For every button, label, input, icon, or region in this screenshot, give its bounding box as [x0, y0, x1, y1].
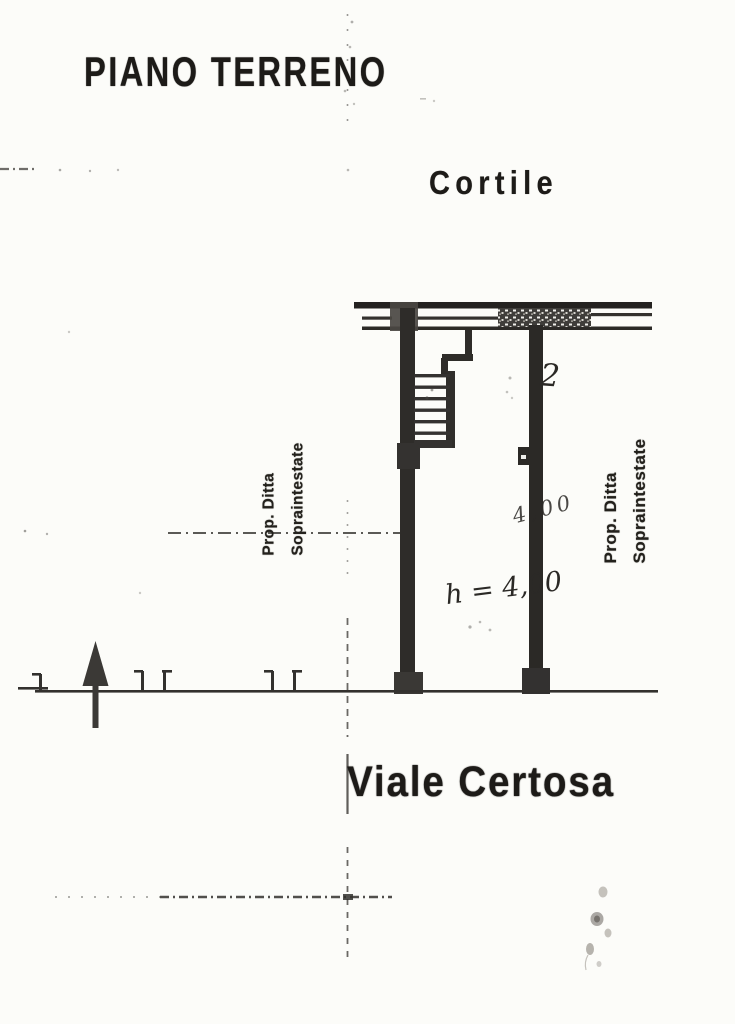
property-label-left-line2: Sopraintestate — [284, 442, 313, 555]
street-label: Viale Certosa — [347, 758, 615, 807]
left-edge-survey-line — [0, 169, 119, 173]
property-label-right-line2: Sopraintestate — [626, 438, 655, 563]
scan-smudges — [585, 887, 611, 971]
property-label-right-line1: Prop. Ditta — [597, 438, 626, 563]
top-wall — [354, 302, 652, 331]
property-label-left-line1: Prop. Ditta — [255, 442, 284, 555]
staircase — [414, 330, 473, 448]
north-arrow-icon — [83, 641, 109, 728]
center-axis-line — [343, 14, 353, 962]
scanned-floor-plan-page: PIANO TERRENO Cortile Prop. Ditta Soprai… — [0, 0, 735, 1024]
mid-survey-line — [24, 530, 400, 536]
property-label-left: Prop. Ditta Sopraintestate — [255, 442, 312, 555]
property-label-right: Prop. Ditta Sopraintestate — [597, 438, 655, 563]
courtyard-label: Cortile — [429, 164, 558, 202]
street-line — [18, 670, 658, 693]
room-number-annotation: 2 — [539, 357, 561, 394]
page-title: PIANO TERRENO — [84, 48, 387, 96]
left-wall — [394, 308, 423, 694]
